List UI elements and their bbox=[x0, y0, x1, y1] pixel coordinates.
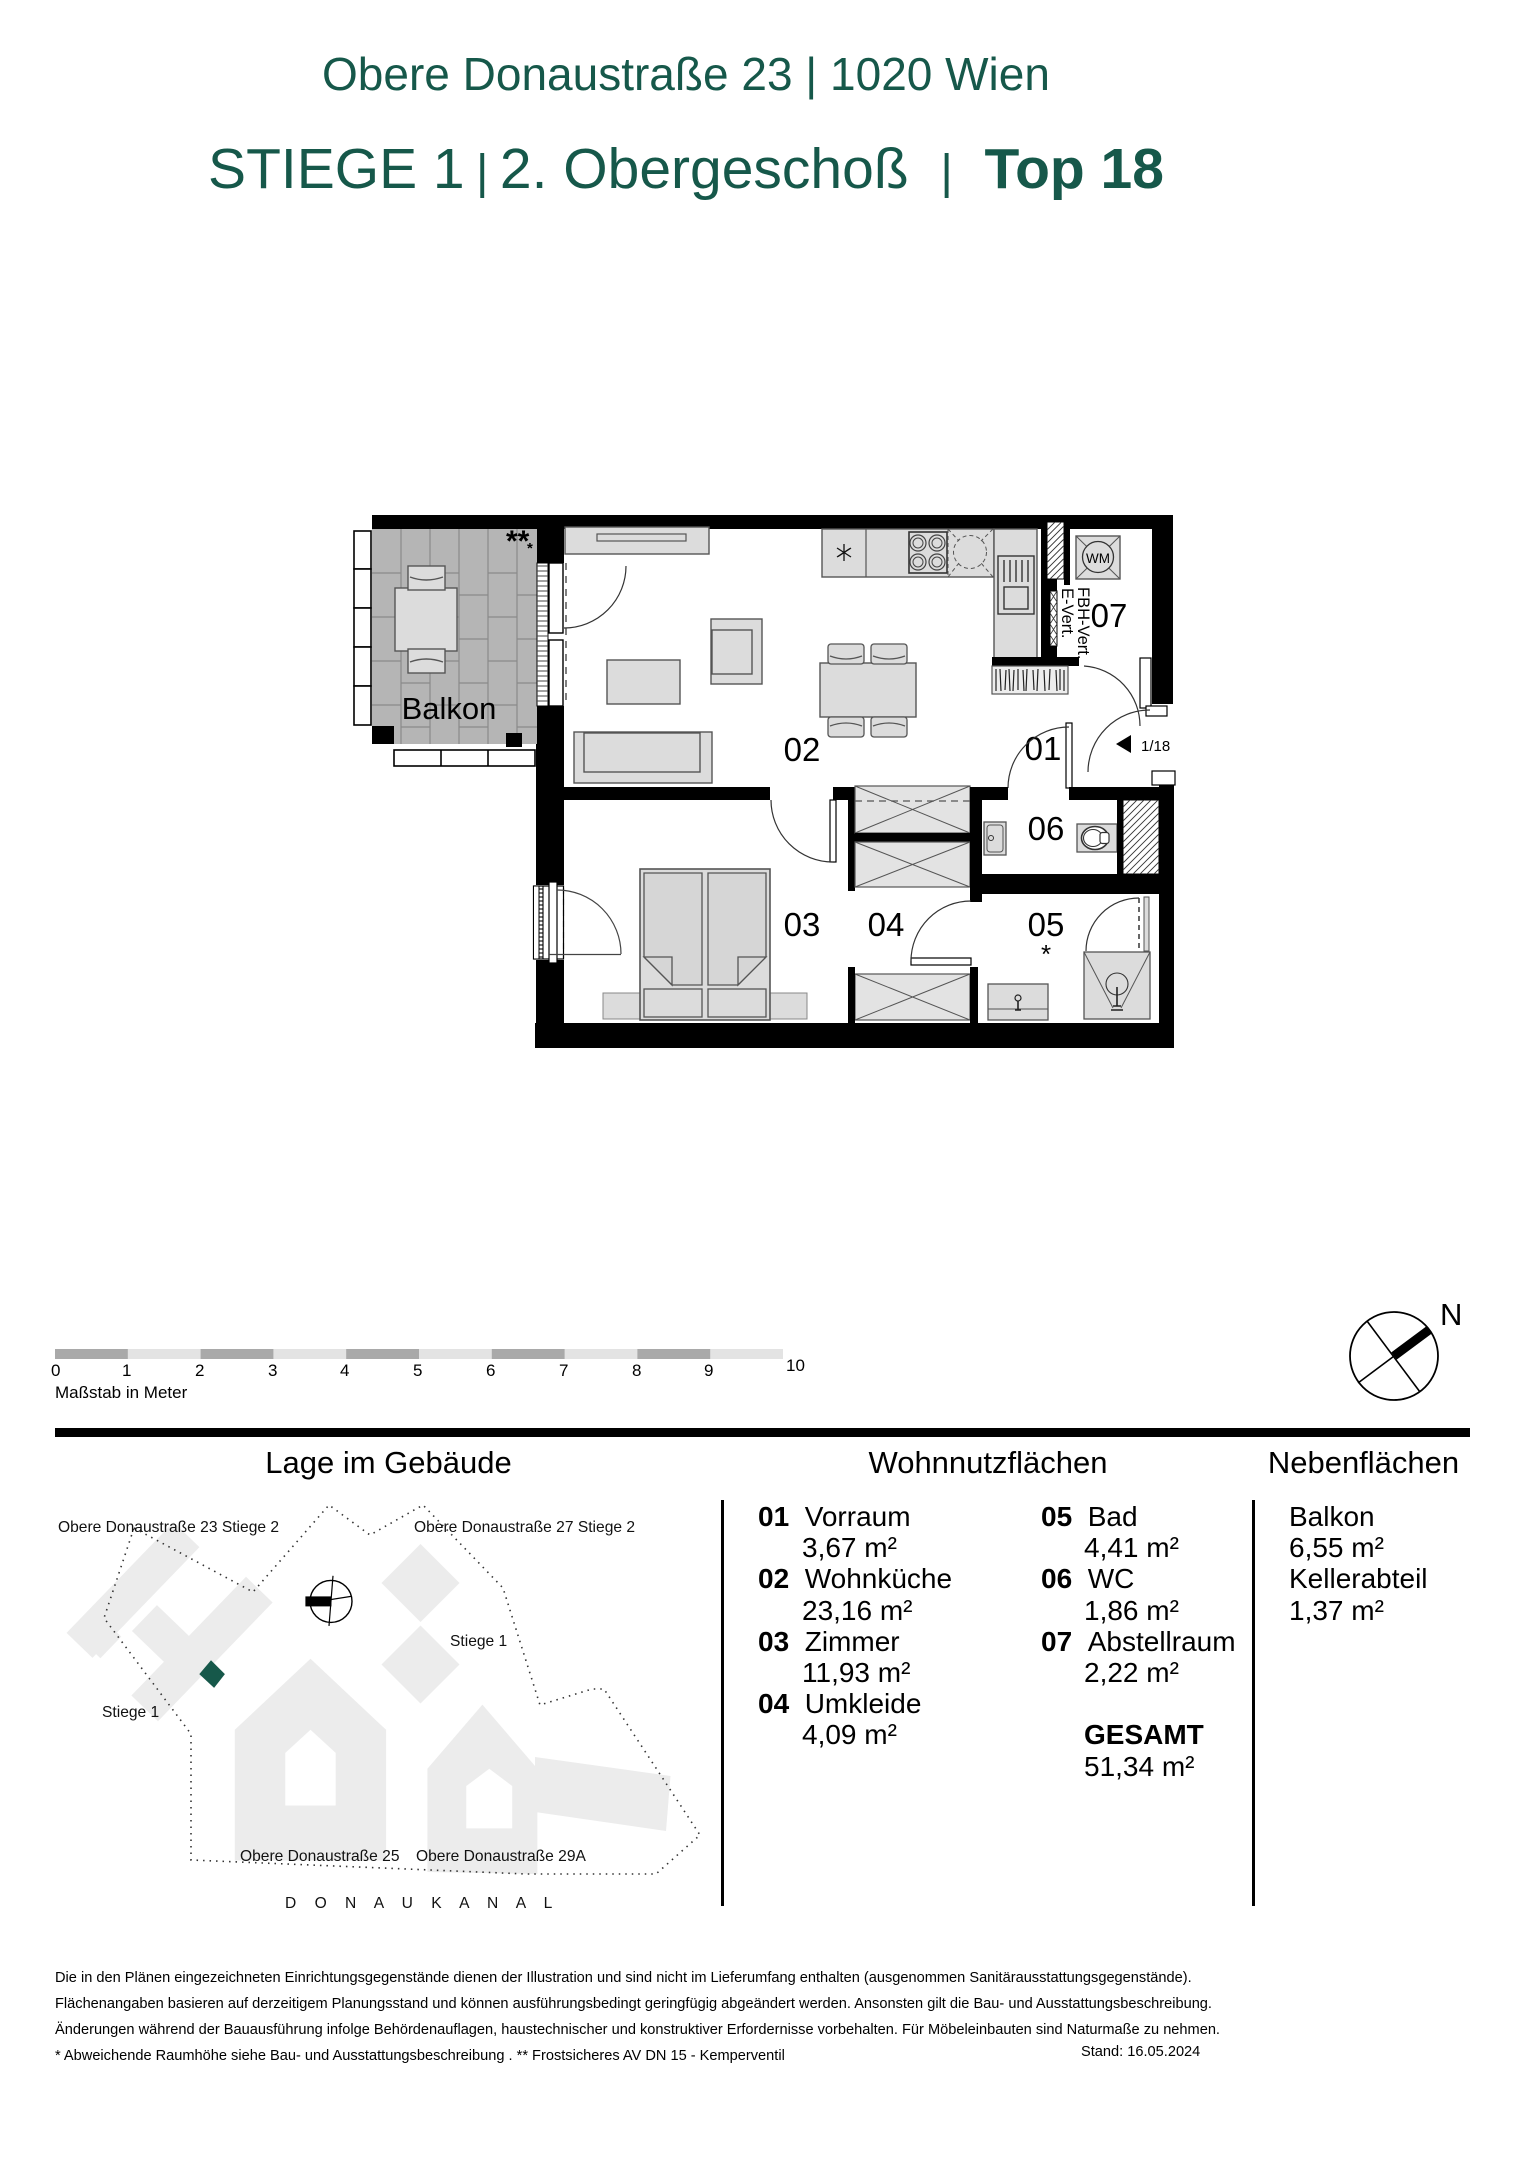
svg-text:01: 01 bbox=[1025, 730, 1062, 767]
svg-text:2: 2 bbox=[195, 1361, 204, 1380]
svg-text:9: 9 bbox=[704, 1361, 713, 1380]
svg-text:4: 4 bbox=[340, 1361, 349, 1380]
svg-text:3: 3 bbox=[268, 1361, 277, 1380]
svg-text:*: * bbox=[1041, 939, 1051, 969]
svg-text:05: 05 bbox=[1028, 906, 1065, 943]
svg-text:*: * bbox=[527, 540, 533, 557]
svg-text:D O N A U K A N A L: D O N A U K A N A L bbox=[285, 1895, 559, 1912]
svg-text:E-Vert.: E-Vert. bbox=[1058, 588, 1076, 638]
svg-text:Stiege 1: Stiege 1 bbox=[450, 1633, 507, 1650]
svg-text:Obere Donaustraße 25: Obere Donaustraße 25 bbox=[240, 1848, 400, 1865]
svg-text:02: 02 bbox=[784, 731, 821, 768]
svg-text:Stiege 1: Stiege 1 bbox=[102, 1704, 159, 1721]
svg-text:Obere Donaustraße 29A: Obere Donaustraße 29A bbox=[416, 1848, 586, 1865]
svg-text:N: N bbox=[1440, 1297, 1462, 1332]
svg-text:04: 04 bbox=[868, 906, 905, 943]
svg-text:5: 5 bbox=[413, 1361, 422, 1380]
svg-text:07: 07 bbox=[1091, 597, 1128, 634]
svg-text:0: 0 bbox=[51, 1361, 60, 1380]
svg-text:7: 7 bbox=[559, 1361, 568, 1380]
svg-text:8: 8 bbox=[632, 1361, 641, 1380]
svg-text:03: 03 bbox=[784, 906, 821, 943]
svg-text:Obere Donaustraße 27 Stiege 2: Obere Donaustraße 27 Stiege 2 bbox=[414, 1519, 635, 1536]
svg-text:Obere Donaustraße 23 Stiege 2: Obere Donaustraße 23 Stiege 2 bbox=[58, 1519, 279, 1536]
svg-text:10: 10 bbox=[786, 1356, 805, 1375]
svg-text:1/18: 1/18 bbox=[1141, 738, 1170, 755]
svg-text:6: 6 bbox=[486, 1361, 495, 1380]
svg-text:WM: WM bbox=[1086, 551, 1110, 566]
svg-text:Balkon: Balkon bbox=[402, 691, 497, 726]
svg-text:06: 06 bbox=[1028, 810, 1065, 847]
svg-text:1: 1 bbox=[122, 1361, 131, 1380]
svg-text:Maßstab in Meter: Maßstab in Meter bbox=[55, 1383, 188, 1402]
